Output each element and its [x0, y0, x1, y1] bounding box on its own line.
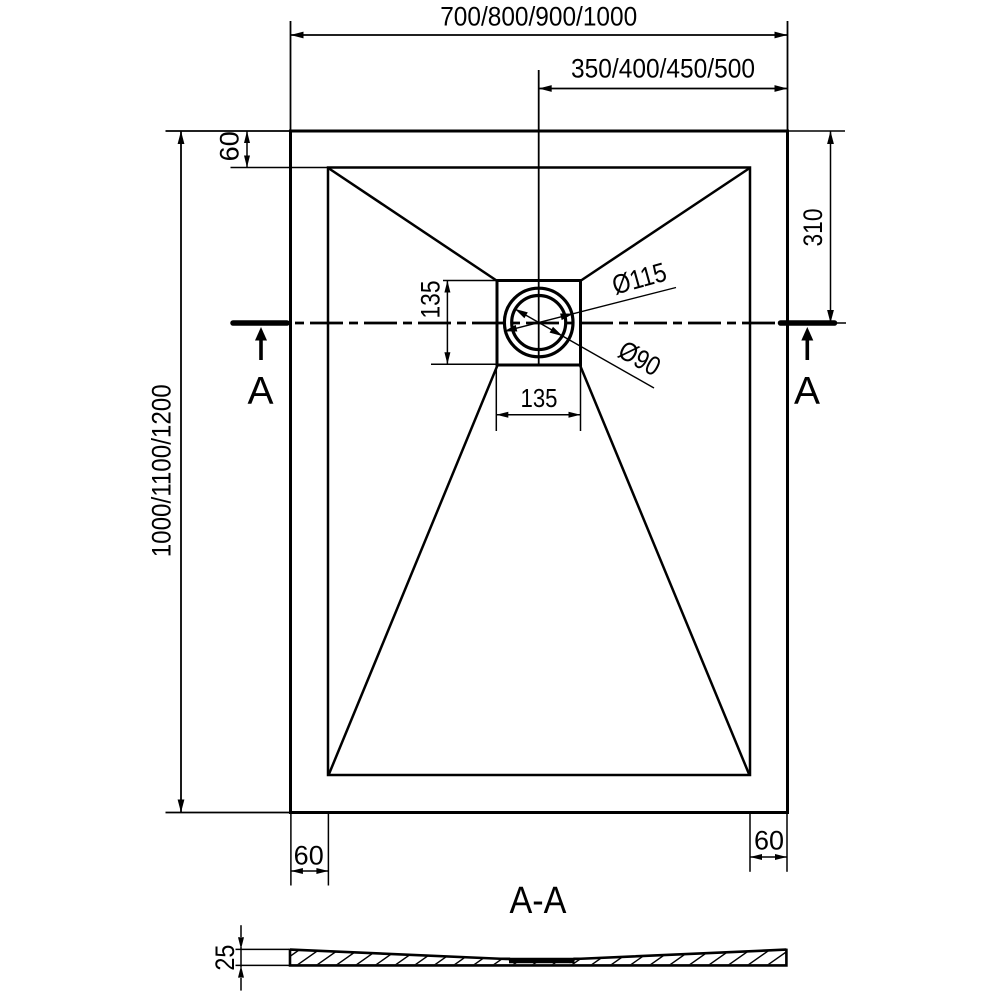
svg-text:60: 60 — [215, 131, 245, 161]
svg-text:310: 310 — [798, 209, 828, 247]
svg-text:135: 135 — [521, 383, 558, 413]
svg-text:A: A — [794, 370, 820, 413]
svg-text:1000/1100/1200: 1000/1100/1200 — [147, 384, 177, 557]
svg-text:350/400/450/500: 350/400/450/500 — [571, 54, 755, 84]
svg-text:60: 60 — [754, 826, 784, 856]
svg-text:135: 135 — [416, 281, 446, 319]
svg-text:A: A — [247, 370, 273, 413]
svg-text:700/800/900/1000: 700/800/900/1000 — [440, 2, 637, 32]
svg-text:A-A: A-A — [510, 880, 568, 922]
svg-text:25: 25 — [210, 945, 240, 971]
svg-text:60: 60 — [294, 841, 324, 871]
